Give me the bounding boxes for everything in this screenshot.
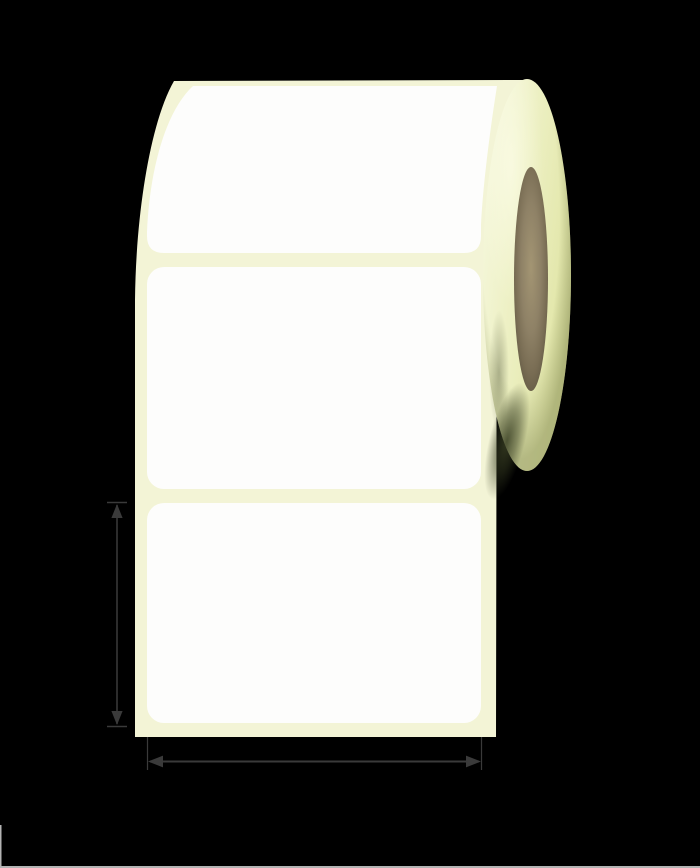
label-roll-illustration (0, 0, 700, 868)
frame-left-border (0, 825, 2, 868)
label-middle (147, 267, 481, 489)
product-image-canvas (0, 0, 700, 868)
label-bottom (147, 503, 481, 723)
label-top (147, 86, 497, 253)
roll-core (514, 167, 548, 391)
